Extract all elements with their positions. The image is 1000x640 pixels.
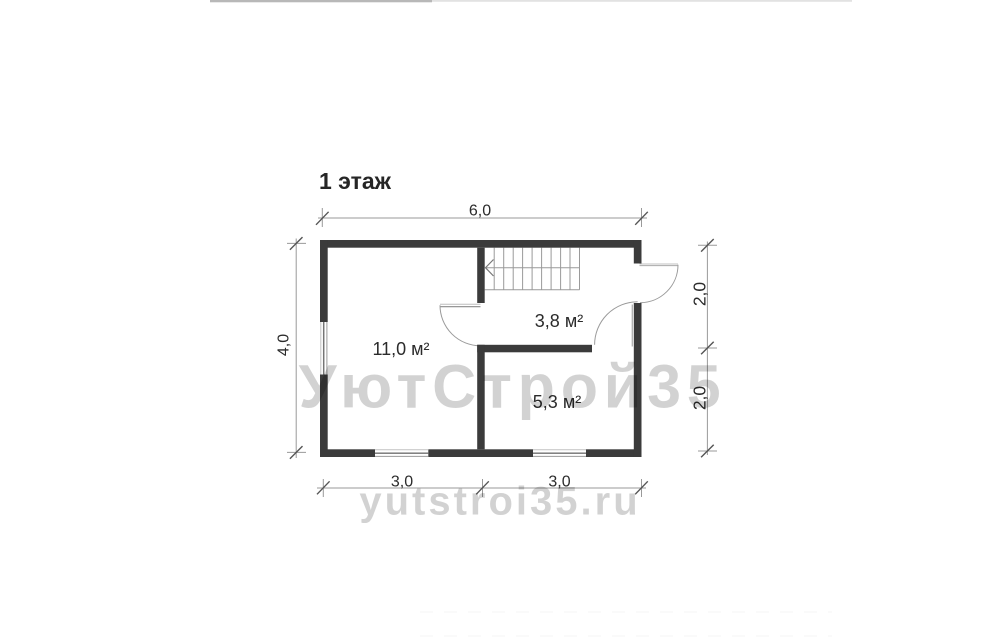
svg-text:УютСтрой35: УютСтрой35 — [299, 353, 727, 421]
svg-text:3,8 м²: 3,8 м² — [535, 311, 583, 331]
svg-text:yutstroi35.ru: yutstroi35.ru — [359, 480, 640, 524]
svg-text:2,0: 2,0 — [690, 282, 710, 307]
svg-text:4,0: 4,0 — [276, 334, 293, 356]
svg-text:1 этаж: 1 этаж — [319, 168, 392, 194]
svg-text:6,0: 6,0 — [469, 203, 491, 220]
